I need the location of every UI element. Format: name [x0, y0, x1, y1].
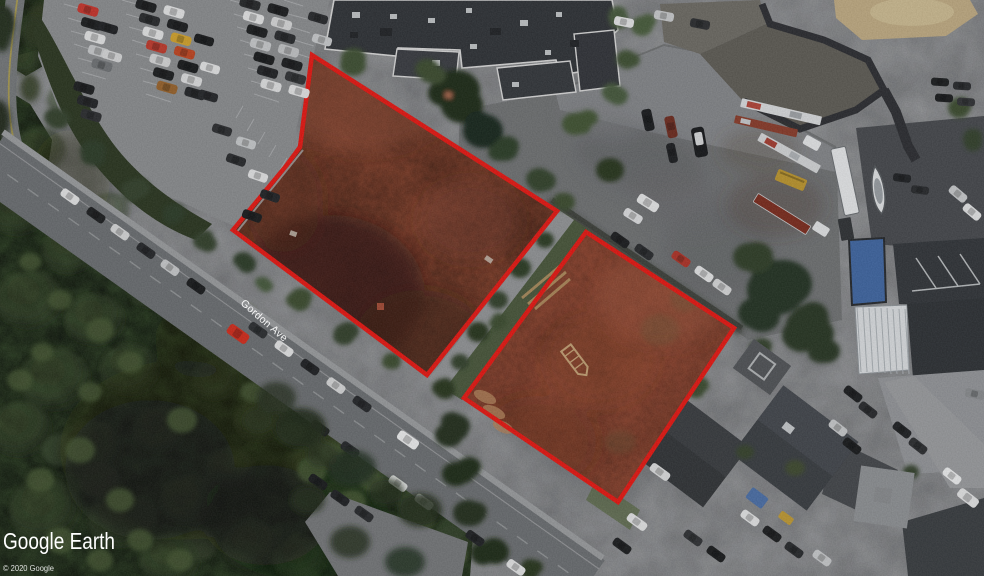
svg-text:© 2020 Google: © 2020 Google: [3, 563, 54, 573]
svg-text:Google Earth: Google Earth: [3, 528, 115, 554]
